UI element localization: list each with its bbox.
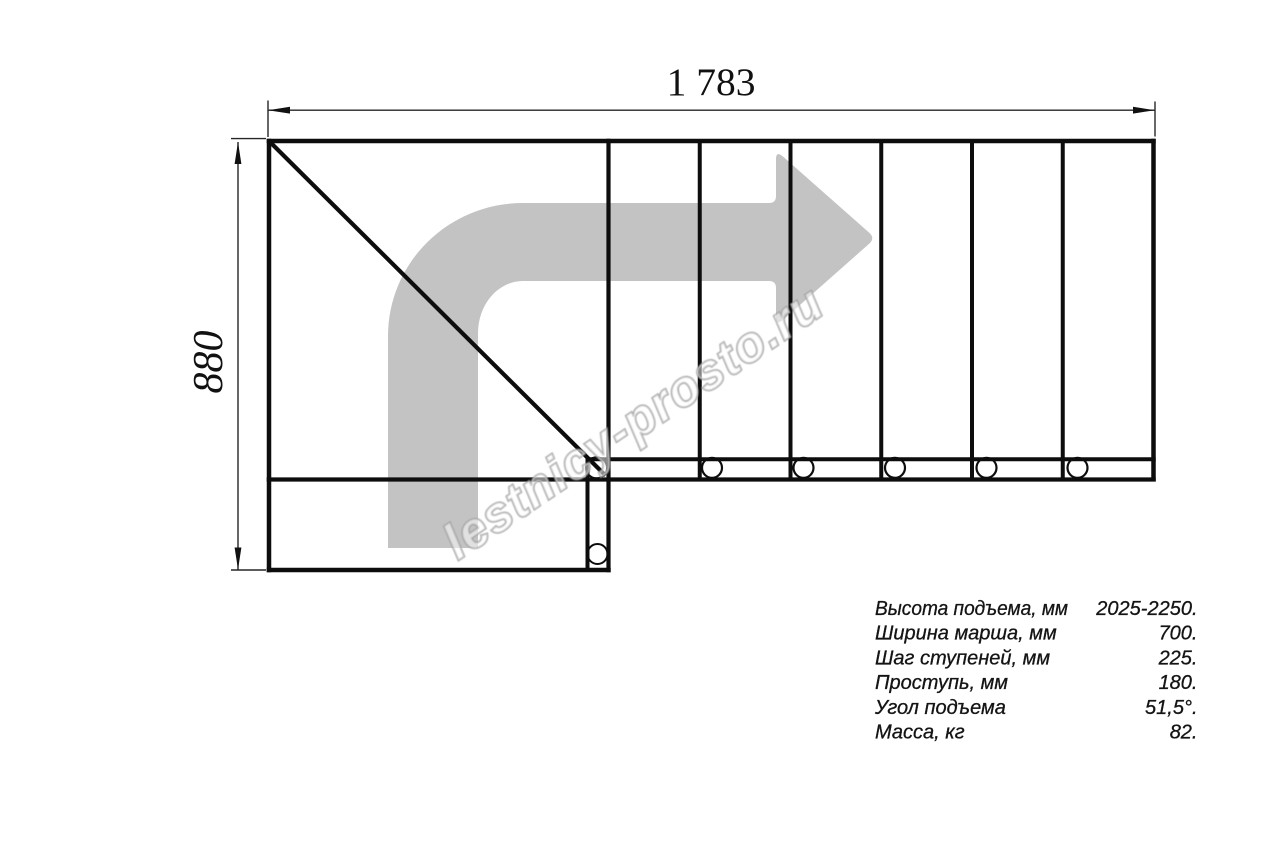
- svg-text:Масса, кг: Масса, кг: [875, 722, 965, 744]
- svg-text:Шаг ступеней, мм: Шаг ступеней, мм: [875, 647, 1050, 669]
- svg-text:225.: 225.: [1158, 647, 1198, 669]
- svg-text:700.: 700.: [1159, 623, 1198, 645]
- svg-text:51,5°.: 51,5°.: [1145, 697, 1197, 719]
- svg-text:880: 880: [186, 331, 232, 394]
- svg-text:1 783: 1 783: [667, 60, 756, 104]
- svg-text:Угол подъема: Угол подъема: [874, 697, 1006, 719]
- svg-text:Ширина марша, мм: Ширина марша, мм: [875, 623, 1057, 645]
- svg-text:Высота подъема, мм: Высота подъема, мм: [875, 598, 1068, 620]
- svg-text:Проступь, мм: Проступь, мм: [875, 672, 1008, 694]
- svg-text:180.: 180.: [1159, 672, 1198, 694]
- svg-text:2025-2250.: 2025-2250.: [1095, 598, 1197, 620]
- svg-text:82.: 82.: [1170, 722, 1198, 744]
